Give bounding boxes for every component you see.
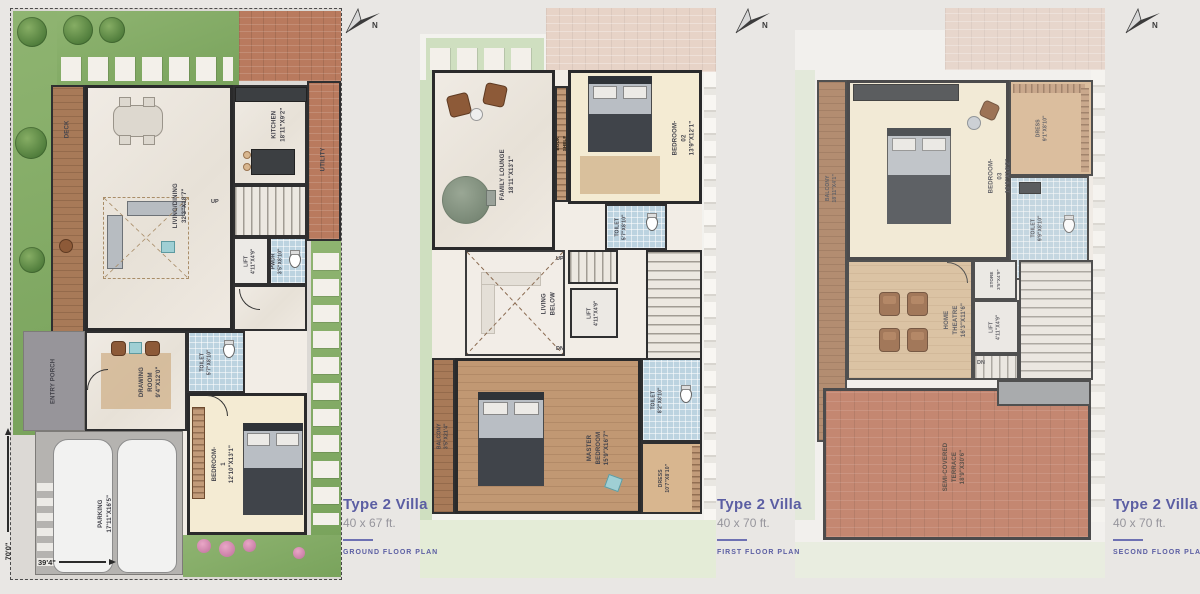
paved-yard bbox=[546, 8, 716, 72]
armchair-icon bbox=[482, 82, 508, 108]
tree-icon bbox=[15, 127, 47, 159]
flower-bush-icon bbox=[197, 539, 211, 553]
brochure-page: DECK LIVING/DINING 32'3"X18'7" KITCHEN 1… bbox=[0, 0, 1200, 594]
tree-icon bbox=[63, 15, 93, 45]
side-table-icon bbox=[470, 108, 483, 121]
staircase bbox=[1019, 260, 1093, 380]
dimension-line bbox=[59, 561, 106, 563]
flower-bush-icon bbox=[219, 541, 235, 557]
north-arrow-icon: N bbox=[1124, 6, 1164, 36]
armchair-icon bbox=[145, 341, 160, 356]
room-pwdr bbox=[269, 237, 307, 285]
up-label: UP bbox=[211, 199, 219, 205]
staircase bbox=[233, 185, 307, 237]
tree-icon bbox=[19, 247, 45, 273]
room-entry-porch bbox=[23, 331, 85, 431]
caption-plan-name: FIRST FLOOR PLAN bbox=[717, 549, 887, 556]
kitchen-stool-icon bbox=[243, 163, 251, 171]
paving-right bbox=[704, 72, 716, 524]
room-balcony bbox=[432, 358, 455, 514]
bed-icon bbox=[243, 423, 303, 515]
void-cross-lines bbox=[467, 252, 563, 354]
living-rug bbox=[103, 197, 189, 279]
deck-table-icon bbox=[59, 239, 73, 253]
dining-table-icon bbox=[113, 105, 163, 137]
stair-landing bbox=[568, 250, 618, 284]
caption-title: Type 2 Villa bbox=[343, 496, 513, 513]
paving-right bbox=[1091, 70, 1105, 522]
room-toilet-b bbox=[641, 358, 702, 442]
dimension-vertical-label: 70'0" bbox=[4, 543, 13, 561]
book-shelf bbox=[555, 86, 568, 202]
caption-plan-name: SECOND FLOOR PLAN bbox=[1113, 549, 1200, 556]
washbasin bbox=[1019, 182, 1041, 194]
tree-icon bbox=[99, 17, 125, 43]
kitchen-counter bbox=[235, 87, 307, 102]
recliner-icon bbox=[879, 328, 900, 352]
room-lift-2 bbox=[973, 300, 1019, 354]
arrow-up-icon bbox=[5, 428, 11, 435]
caption-ground: Type 2 Villa 40 x 67 ft. GROUND FLOOR PL… bbox=[343, 496, 513, 556]
staircase bbox=[646, 250, 702, 372]
bed-icon bbox=[478, 392, 544, 486]
ground-floor-plan: DECK LIVING/DINING 32'3"X18'7" KITCHEN 1… bbox=[10, 8, 342, 580]
flower-bush-icon bbox=[243, 539, 256, 552]
dining-chair-icon bbox=[119, 135, 131, 145]
wardrobe bbox=[1013, 84, 1085, 93]
north-letter: N bbox=[762, 21, 768, 30]
accent-seat-icon bbox=[129, 342, 142, 354]
first-floor-plan: FAMILY LOUNGE 18'11"X13'1" BOOK SHELF BE… bbox=[420, 8, 716, 580]
desk-chair-icon bbox=[967, 116, 981, 130]
up-label: UP bbox=[556, 256, 564, 262]
dining-chair-icon bbox=[143, 135, 155, 145]
north-letter: N bbox=[372, 21, 378, 30]
caption-size: 40 x 70 ft. bbox=[1113, 516, 1200, 530]
kitchen-stool-icon bbox=[243, 151, 251, 159]
dn-label: DN bbox=[556, 346, 564, 352]
car-icon bbox=[53, 439, 113, 573]
caption-size: 40 x 70 ft. bbox=[717, 516, 887, 530]
planter-column bbox=[313, 253, 339, 525]
planter-row bbox=[430, 48, 536, 70]
armchair-icon bbox=[111, 341, 126, 356]
room-toilet-1 bbox=[187, 331, 245, 393]
north-arrow-icon: N bbox=[344, 6, 384, 36]
flower-bush-icon bbox=[293, 547, 305, 559]
bed-icon bbox=[887, 128, 951, 224]
north-letter: N bbox=[1152, 21, 1158, 30]
bed-icon bbox=[588, 76, 652, 152]
living-below-void bbox=[465, 250, 565, 356]
lawn-left-strip bbox=[420, 80, 432, 520]
room-store bbox=[973, 260, 1017, 300]
tree-icon bbox=[17, 17, 47, 47]
terrace-ledge bbox=[997, 380, 1091, 406]
north-arrow-icon: N bbox=[734, 6, 774, 36]
kitchen-island bbox=[251, 149, 295, 175]
caption-title: Type 2 Villa bbox=[1113, 496, 1200, 513]
room-utility bbox=[307, 81, 341, 241]
caption-plan-name: GROUND FLOOR PLAN bbox=[343, 549, 513, 556]
dining-chair-icon bbox=[119, 97, 131, 107]
wardrobe bbox=[192, 407, 205, 499]
second-floor-plan: BALCONY 18'11"X4'1" BEDROOM-03 15'9"X16'… bbox=[795, 8, 1105, 580]
room-toilet-a bbox=[605, 204, 667, 250]
wardrobe bbox=[1081, 88, 1089, 172]
caption-size: 40 x 67 ft. bbox=[343, 516, 513, 530]
caption-divider bbox=[343, 539, 373, 541]
planter-row bbox=[61, 57, 233, 81]
paved-yard bbox=[239, 11, 341, 81]
dimension-vertical: 70'0" bbox=[0, 428, 16, 556]
caption-title: Type 2 Villa bbox=[717, 496, 887, 513]
wardrobe bbox=[853, 84, 959, 101]
stair-landing bbox=[973, 354, 1019, 380]
piano-bench-icon bbox=[486, 190, 496, 206]
car-icon bbox=[117, 439, 177, 573]
grand-piano-icon bbox=[442, 176, 490, 224]
dining-chair-icon bbox=[143, 97, 155, 107]
caption-first: Type 2 Villa 40 x 70 ft. FIRST FLOOR PLA… bbox=[717, 496, 887, 556]
recliner-icon bbox=[879, 292, 900, 316]
rug-cross-lines bbox=[104, 198, 188, 278]
dimension-horizontal: 39'4" bbox=[38, 554, 116, 570]
room-lift bbox=[570, 288, 618, 338]
dimension-horizontal-label: 39'4" bbox=[38, 558, 56, 567]
recliner-icon bbox=[907, 292, 928, 316]
lawn-left-strip bbox=[795, 70, 815, 520]
dimension-line bbox=[7, 436, 9, 532]
paved-yard bbox=[945, 8, 1105, 70]
dn2-label: DN bbox=[977, 360, 985, 366]
caption-second: Type 2 Villa 40 x 70 ft. SECOND FLOOR PL… bbox=[1113, 496, 1200, 556]
room-deck bbox=[51, 85, 85, 371]
room-lift bbox=[233, 237, 269, 285]
faded-wrap: BALCONY 18'11"X4'1" BEDROOM-03 15'9"X16'… bbox=[795, 8, 1105, 580]
bedroom2-rug bbox=[580, 156, 660, 194]
wardrobe bbox=[692, 446, 700, 510]
caption-divider bbox=[717, 539, 747, 541]
caption-divider bbox=[1113, 539, 1143, 541]
drawing-rug bbox=[101, 353, 171, 409]
recliner-icon bbox=[907, 328, 928, 352]
arrow-right-icon bbox=[109, 559, 116, 565]
